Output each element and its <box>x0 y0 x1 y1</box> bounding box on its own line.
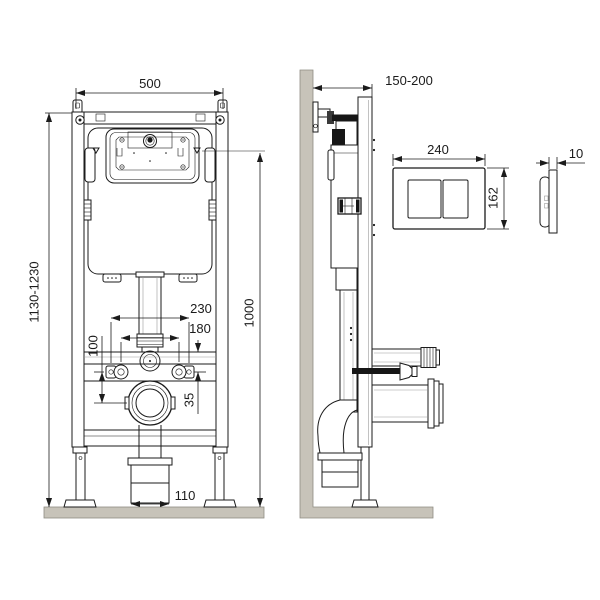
outlet-pipe-side <box>372 385 428 422</box>
panel-dot-2 <box>165 152 167 154</box>
frame-upright <box>358 97 372 447</box>
bottom-crossbar <box>84 430 216 446</box>
dim-label-plate-height: 162 <box>485 187 500 209</box>
foot-plate-side <box>352 500 378 507</box>
drain-box-collar <box>128 458 172 465</box>
drain-ring-outer <box>128 381 172 425</box>
stud-cap <box>412 367 417 377</box>
floor-front <box>44 507 264 518</box>
inlet-valve-side <box>332 129 345 145</box>
plate-body-side <box>549 170 557 233</box>
leg-left <box>76 453 85 500</box>
outlet-flange <box>428 379 443 428</box>
flush-pipe-front <box>136 272 164 371</box>
dim-label-frame-height: 1130-1230 <box>26 261 41 322</box>
cistern-bottom-tab-right <box>179 274 197 282</box>
dim-label-bolt-to-drain: 100 <box>85 335 100 357</box>
inlet-connection-pipe <box>372 349 421 366</box>
frame-bolt-left-center <box>79 119 82 122</box>
dim-plate-height: 162 <box>485 168 509 229</box>
panel-dot-3 <box>149 160 151 162</box>
panel-dot-1 <box>133 152 135 154</box>
foot-plate-right <box>204 500 236 507</box>
drain-box <box>131 465 169 503</box>
dim-label-rail-to-bolt: 35 <box>181 393 196 407</box>
cistern-base-side <box>336 268 357 290</box>
cistern-latch-side <box>328 150 334 180</box>
dim-label-plate-thickness: 10 <box>569 146 583 161</box>
cistern-latch-right <box>205 148 215 182</box>
pipe-coupling <box>137 334 163 347</box>
dim-fixing-inner: 180 <box>121 321 211 362</box>
cistern-bottom-tab-left <box>103 274 121 282</box>
side-rail-right <box>216 112 228 447</box>
front-view <box>44 100 265 518</box>
dim-label-level-height: 1000 <box>241 299 256 328</box>
dim-frame-depth: 150-200 <box>313 73 433 97</box>
elbow-pipe <box>318 400 357 453</box>
side-rail-left <box>72 112 84 447</box>
leg-collar-right <box>213 447 227 453</box>
cistern-latch-left <box>85 148 95 182</box>
wc-frame-technical-drawing: 500 1130-1230 1000 230 180 <box>0 0 600 600</box>
drain-box-side <box>322 460 358 487</box>
dim-label-plate-width: 240 <box>427 142 449 157</box>
access-panel <box>93 129 265 183</box>
flush-connection-center <box>149 360 151 362</box>
dim-label-drain-box: 110 <box>175 488 196 503</box>
fixing-stud-side <box>352 368 400 374</box>
technical-drawing-page: 500 1130-1230 1000 230 180 <box>0 0 600 600</box>
threaded-rod-top <box>332 115 358 122</box>
dim-label-frame-width: 500 <box>139 76 161 91</box>
foot-plate-left <box>64 500 96 507</box>
drain-box-collar-side <box>318 453 362 460</box>
threaded-end <box>421 348 440 368</box>
fixing-bolt-left <box>114 365 128 379</box>
side-view <box>300 70 443 518</box>
inlet-fitting-core <box>147 137 152 142</box>
dim-label-fixing-inner: 180 <box>189 321 211 336</box>
top-mount-tab-right <box>218 100 227 113</box>
dim-plate-thickness: 10 <box>536 146 585 169</box>
strap-clip-right <box>209 200 216 220</box>
dim-frame-height: 1130-1230 <box>26 113 72 507</box>
dim-level-height: 1000 <box>241 153 260 507</box>
dim-label-frame-depth: 150-200 <box>385 73 433 88</box>
leg-collar-left <box>73 447 87 453</box>
flush-plate-side <box>540 170 557 233</box>
top-mount-tab-left <box>73 100 82 113</box>
flush-plate-front <box>393 168 485 229</box>
service-box-side <box>338 198 361 214</box>
flush-pipe-side <box>340 290 357 412</box>
fixing-bolt-right <box>172 365 186 379</box>
frame-bolt-right-center <box>219 119 222 122</box>
drain-clamp-right <box>171 397 175 409</box>
leg-right <box>215 453 224 500</box>
flush-pipe-flange <box>136 272 164 277</box>
plate-body <box>393 168 485 229</box>
dim-frame-width: 500 <box>76 76 223 109</box>
dim-label-fixing-outer: 230 <box>190 301 212 316</box>
dim-plate-width: 240 <box>393 142 485 166</box>
strap-clip-left <box>84 200 91 220</box>
drain-elbow-side <box>318 400 362 487</box>
